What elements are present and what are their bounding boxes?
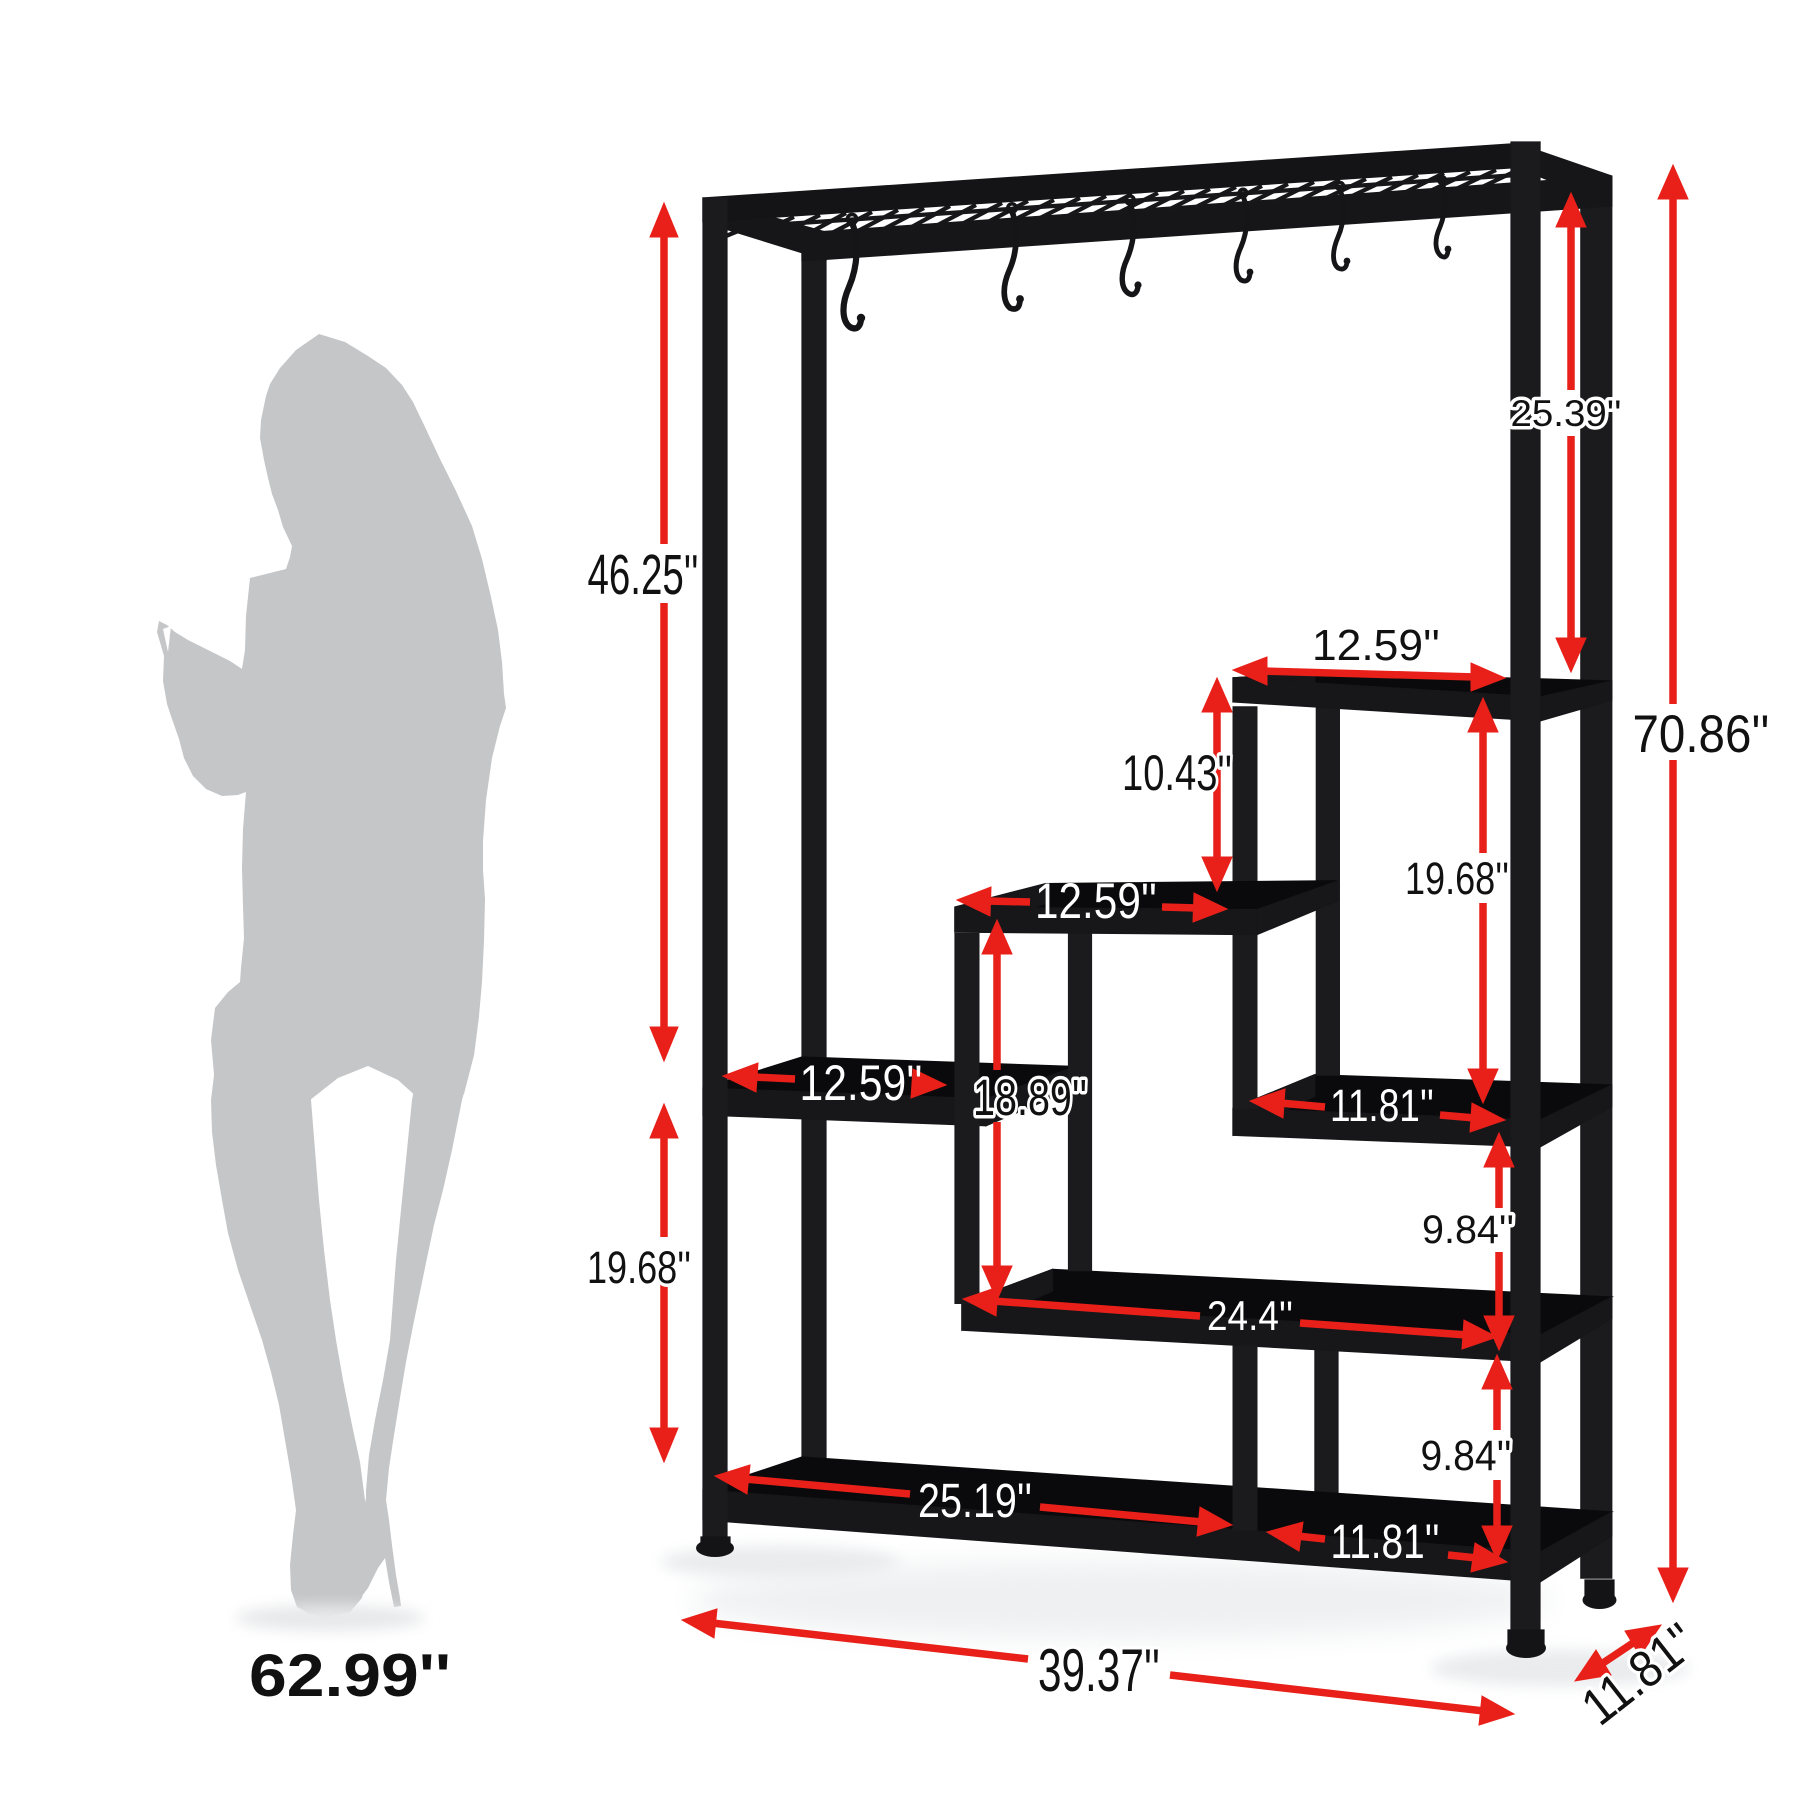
- svg-text:46.25'': 46.25'': [588, 543, 699, 607]
- svg-text:12.59'': 12.59'': [1035, 873, 1157, 929]
- svg-text:9.84'': 9.84'': [1422, 1208, 1514, 1252]
- svg-text:18.89'': 18.89'': [973, 1069, 1087, 1126]
- svg-text:11.81'': 11.81'': [1331, 1516, 1440, 1569]
- svg-text:70.86'': 70.86'': [1633, 705, 1770, 764]
- svg-text:10.43'': 10.43'': [1122, 745, 1232, 801]
- svg-text:19.68'': 19.68'': [1405, 853, 1509, 904]
- svg-text:19.68'': 19.68'': [587, 1242, 691, 1293]
- svg-text:25.39'': 25.39'': [1511, 393, 1622, 434]
- svg-text:25.19'': 25.19'': [918, 1475, 1032, 1528]
- svg-text:39.37'': 39.37'': [1038, 1637, 1160, 1704]
- svg-text:62.99'': 62.99'': [249, 1642, 451, 1709]
- svg-text:12.59'': 12.59'': [800, 1055, 923, 1111]
- svg-text:9.84'': 9.84'': [1421, 1432, 1512, 1480]
- svg-text:11.81'': 11.81'': [1330, 1080, 1434, 1131]
- svg-text:12.59'': 12.59'': [1312, 621, 1440, 670]
- svg-text:24.4'': 24.4'': [1207, 1292, 1293, 1339]
